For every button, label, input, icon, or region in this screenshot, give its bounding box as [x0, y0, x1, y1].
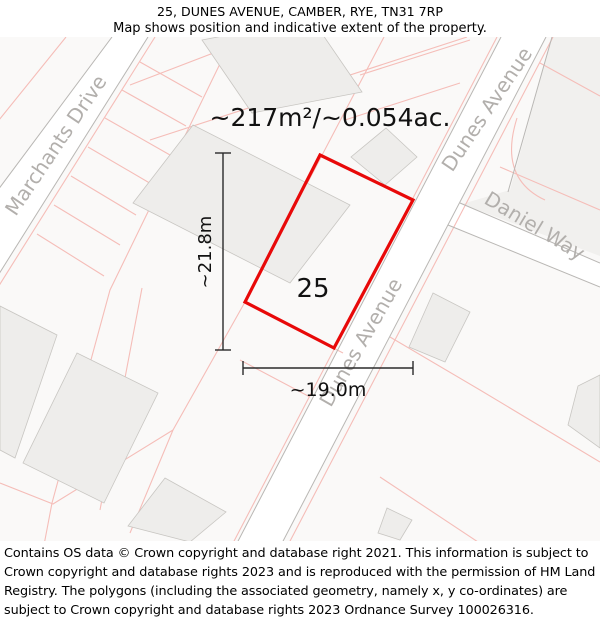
report-header: 25, DUNES AVENUE, CAMBER, RYE, TN31 7RP …	[0, 0, 600, 37]
page-title: 25, DUNES AVENUE, CAMBER, RYE, TN31 7RP	[0, 0, 600, 19]
map-svg: Marchants Drive Dunes Avenue Dunes Avenu…	[0, 37, 600, 541]
copyright-footer: Contains OS data © Crown copyright and d…	[0, 542, 598, 620]
property-number-label: 25	[296, 274, 329, 304]
height-dimension-label: ~21.8m	[195, 216, 216, 289]
map-container: Marchants Drive Dunes Avenue Dunes Avenu…	[0, 37, 600, 541]
area-label: ~217m²/~0.054ac.	[210, 103, 451, 132]
width-dimension-label: ~19.0m	[290, 379, 367, 401]
page-subtitle: Map shows position and indicative extent…	[0, 19, 600, 36]
